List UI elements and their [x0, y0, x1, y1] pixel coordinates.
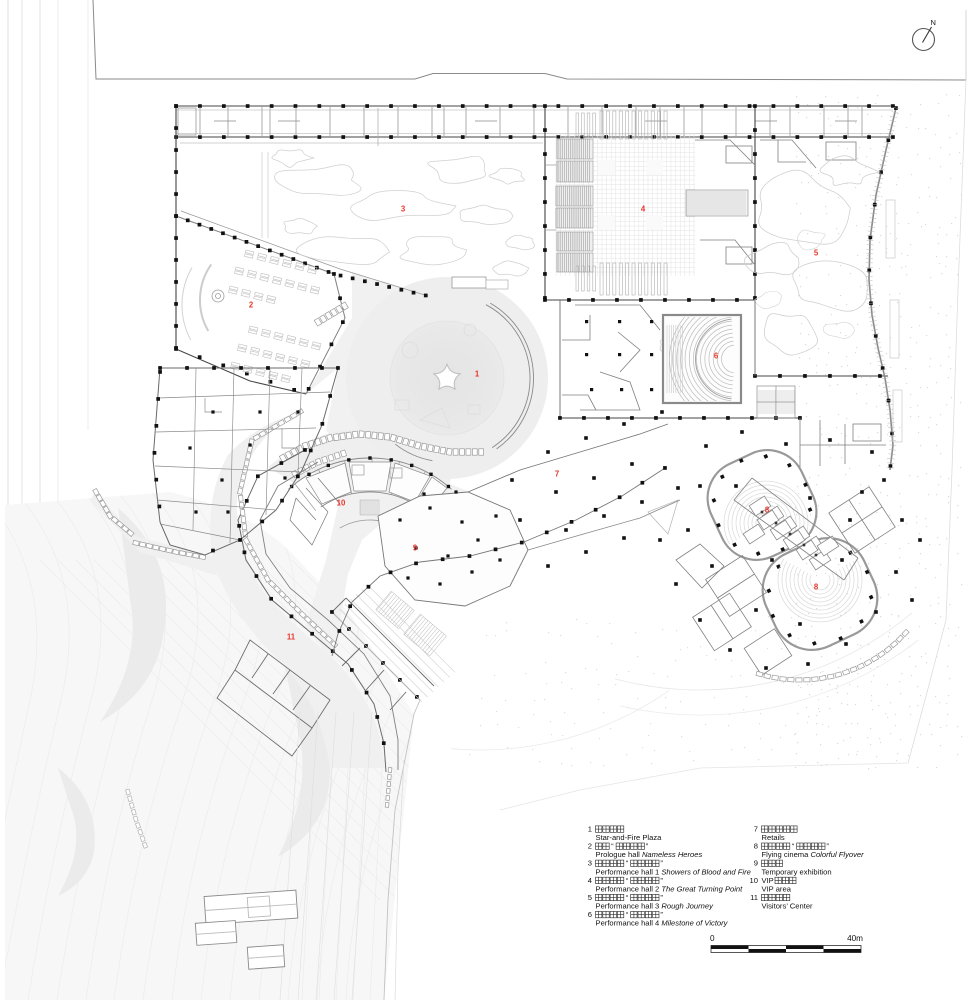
svg-text:6: 6	[588, 910, 592, 919]
svg-text:9: 9	[754, 859, 758, 868]
svg-text:1: 1	[588, 825, 592, 834]
svg-text:10: 10	[750, 876, 758, 885]
svg-text:N: N	[931, 18, 936, 27]
svg-text:6: 6	[714, 352, 719, 361]
svg-text:Prologue hall Nameless Heroes: Prologue hall Nameless Heroes	[596, 850, 703, 859]
svg-text:Performance hall 1 Showers of: Performance hall 1 Showers of Blood and …	[596, 867, 751, 876]
svg-text:0: 0	[710, 934, 715, 943]
svg-text:2: 2	[249, 301, 254, 310]
svg-text:4: 4	[588, 876, 592, 885]
svg-text:Performance hall 2 The Great T: Performance hall 2 The Great Turning Poi…	[596, 884, 744, 893]
svg-text:8: 8	[814, 583, 819, 592]
svg-text:8: 8	[765, 506, 770, 515]
svg-text:10: 10	[337, 499, 346, 508]
svg-text:2: 2	[588, 842, 592, 851]
svg-text:VIP area: VIP area	[762, 884, 792, 893]
svg-text:11: 11	[750, 893, 758, 902]
svg-text:7: 7	[754, 825, 758, 834]
svg-text:Performance hall 4 Milestone o: Performance hall 4 Milestone of Victory	[596, 919, 729, 928]
svg-text:3: 3	[588, 859, 592, 868]
svg-text:11: 11	[287, 633, 296, 642]
svg-text:Retails: Retails	[762, 833, 785, 842]
svg-text:1: 1	[475, 370, 480, 379]
svg-text:40m: 40m	[847, 934, 863, 943]
svg-text:5: 5	[814, 249, 819, 258]
svg-text:8: 8	[754, 842, 758, 851]
svg-text:3: 3	[401, 205, 406, 214]
svg-text:5: 5	[588, 893, 592, 902]
svg-text:9: 9	[413, 544, 418, 553]
svg-text:Flying cinema Colorful Flyover: Flying cinema Colorful Flyover	[762, 850, 865, 859]
svg-text:7: 7	[555, 470, 559, 479]
svg-text:Performance hall 3 Rough Journ: Performance hall 3 Rough Journey	[596, 901, 715, 910]
svg-text:Visitors’ Center: Visitors’ Center	[762, 901, 814, 910]
svg-text:Star-and-Fire Plaza: Star-and-Fire Plaza	[596, 833, 663, 842]
svg-text:4: 4	[641, 205, 646, 214]
